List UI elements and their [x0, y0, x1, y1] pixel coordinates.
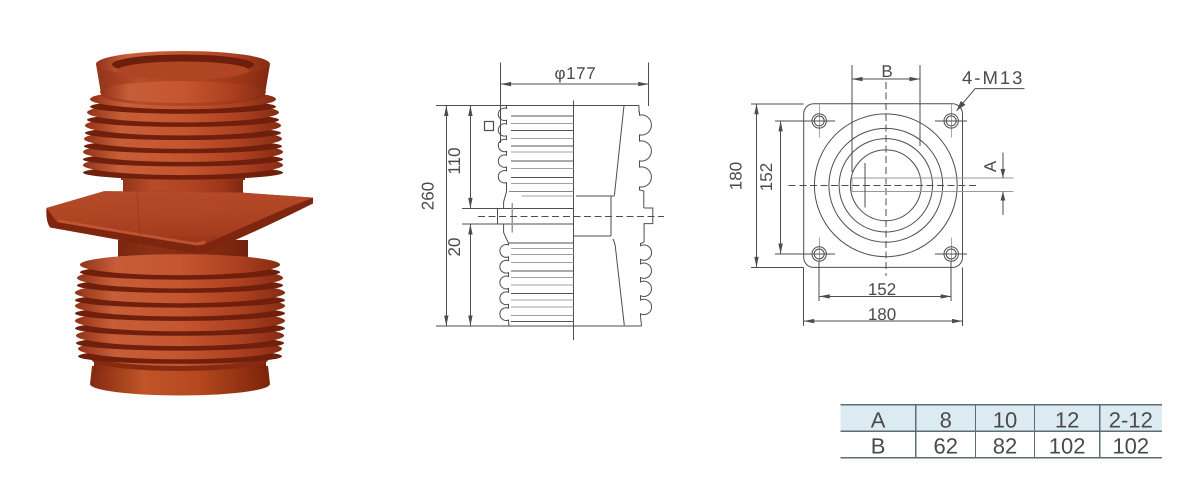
svg-text:180: 180 [727, 162, 746, 190]
svg-text:4-M13: 4-M13 [962, 67, 1024, 88]
svg-text:62: 62 [933, 433, 957, 458]
svg-text:82: 82 [993, 433, 1017, 458]
svg-text:B: B [881, 62, 892, 81]
svg-text:A: A [871, 407, 886, 432]
svg-text:152: 152 [868, 280, 896, 299]
svg-text:B: B [871, 433, 886, 458]
svg-text:152: 152 [757, 163, 776, 191]
svg-text:10: 10 [993, 407, 1017, 432]
svg-text:8: 8 [940, 407, 952, 432]
svg-text:180: 180 [868, 305, 896, 324]
svg-text:20: 20 [445, 238, 464, 257]
svg-text:260: 260 [419, 182, 438, 210]
svg-text:110: 110 [445, 147, 464, 174]
svg-text:102: 102 [1049, 433, 1086, 458]
svg-text:2-12: 2-12 [1109, 407, 1153, 432]
svg-text:A: A [981, 160, 1000, 172]
svg-text:102: 102 [1112, 433, 1149, 458]
svg-text:φ177: φ177 [555, 64, 597, 83]
svg-text:12: 12 [1055, 407, 1079, 432]
